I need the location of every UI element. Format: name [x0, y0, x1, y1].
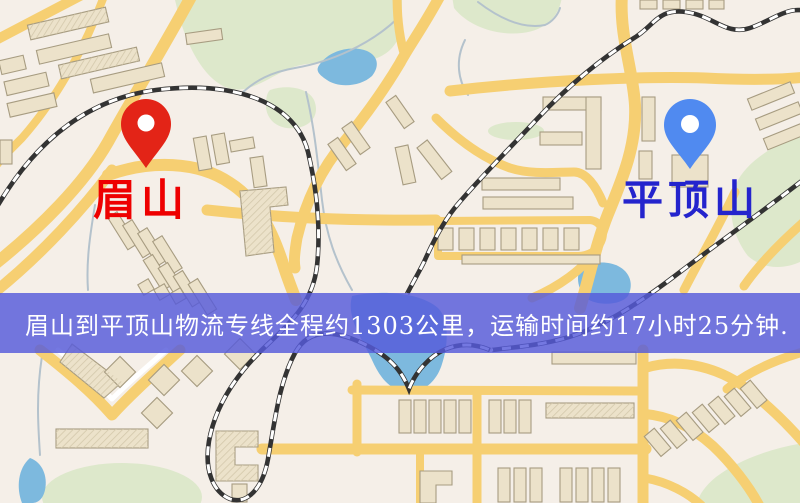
map-canvas[interactable]	[0, 0, 800, 503]
route-info-banner: 眉山到平顶山物流专线全程约1303公里，运输时间约17小时25分钟.	[0, 293, 800, 353]
map-screenshot: 眉山 平顶山 眉山到平顶山物流专线全程约1303公里，运输时间约17小时25分钟…	[0, 0, 800, 503]
destination-label: 平顶山	[622, 180, 760, 221]
route-info-text: 眉山到平顶山物流专线全程约1303公里，运输时间约17小时25分钟.	[0, 306, 789, 341]
origin-label: 眉山	[93, 180, 189, 223]
